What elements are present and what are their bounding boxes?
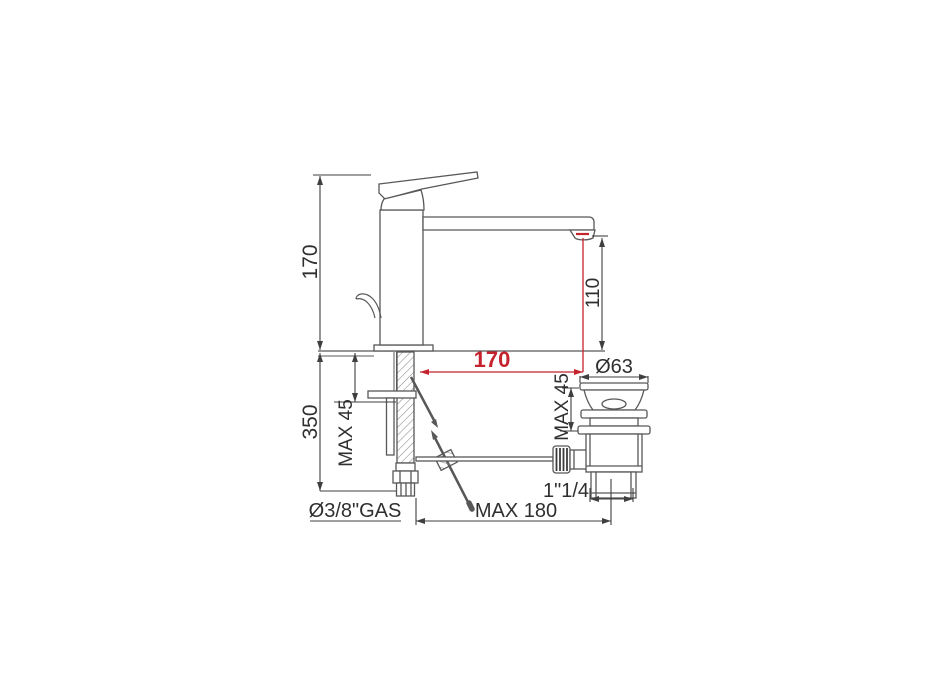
spout-reach-label: 170 bbox=[474, 347, 511, 372]
supply-hose-curve bbox=[356, 294, 381, 318]
mounting-nut bbox=[368, 391, 416, 398]
flex-hose bbox=[387, 398, 395, 455]
threaded-shank bbox=[394, 352, 414, 463]
total-depth-label: 350 bbox=[299, 404, 322, 439]
counter-line bbox=[318, 351, 605, 356]
screenshot-root: 170 350 MAX 45 110 170 Ø63 MAX 45 1"1/4 … bbox=[0, 0, 950, 700]
handle-lever bbox=[379, 172, 478, 210]
fixture-drawing bbox=[318, 172, 650, 509]
deck-max-left-label: MAX 45 bbox=[336, 399, 357, 467]
supply-thread-label: Ø3/8"GAS bbox=[309, 500, 402, 522]
drain-diameter-label: Ø63 bbox=[595, 356, 633, 378]
ball-joint bbox=[553, 446, 587, 473]
deck-max-right-label: MAX 45 bbox=[552, 373, 573, 441]
pop-up-rod bbox=[411, 377, 472, 509]
spout bbox=[423, 217, 594, 230]
rod-max-label: MAX 180 bbox=[475, 500, 557, 522]
base-plate bbox=[374, 345, 433, 351]
supply-fitting bbox=[393, 463, 418, 496]
horizontal-rod bbox=[416, 457, 553, 461]
total-height-label: 170 bbox=[299, 244, 322, 279]
drain-thread-label: 1"1/4 bbox=[543, 480, 589, 502]
technical-drawing: 170 350 MAX 45 110 170 Ø63 MAX 45 1"1/4 … bbox=[0, 0, 950, 700]
spout-height-label: 110 bbox=[583, 278, 604, 308]
faucet-body bbox=[380, 210, 423, 345]
